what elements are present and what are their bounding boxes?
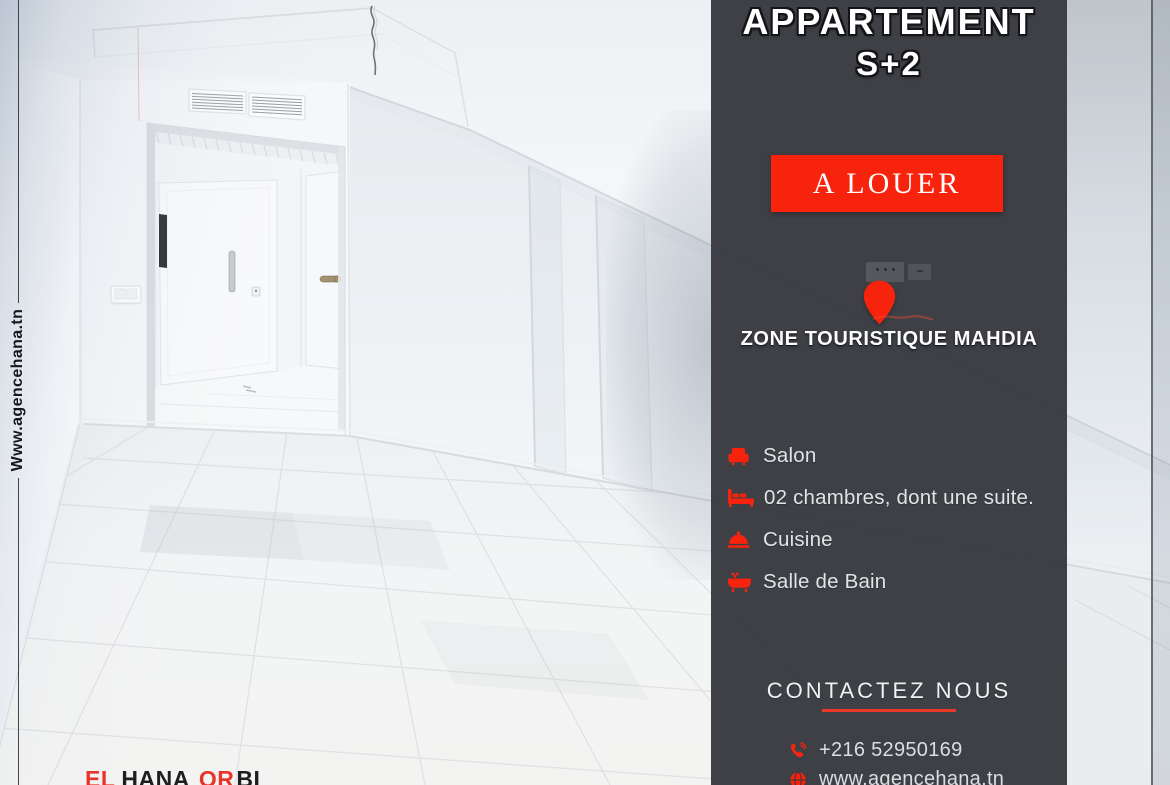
feature-label: 02 chambres, dont une suite. xyxy=(764,486,1034,510)
watermark-url: Www.agencehana.tn xyxy=(9,309,27,472)
agency-logo: ELHANAORBI xyxy=(85,767,260,785)
globe-icon xyxy=(789,771,807,785)
feature-label: Cuisine xyxy=(763,528,833,552)
website-row[interactable]: www.agencehana.tn xyxy=(789,768,1004,785)
hallway-door-left xyxy=(159,180,277,385)
logo-segment: EL xyxy=(85,766,115,785)
feature-label: Salon xyxy=(763,444,816,468)
website-url: www.agencehana.tn xyxy=(819,768,1004,785)
sofa-icon xyxy=(727,447,754,466)
feature-item-salle-de-bain: Salle de Bain xyxy=(727,570,1055,594)
feature-item-chambres: 02 chambres, dont une suite. xyxy=(727,486,1055,510)
phone-icon xyxy=(789,742,807,760)
phone-number: +216 52950169 xyxy=(819,739,963,762)
hallway xyxy=(147,123,345,436)
watermark-rule-top xyxy=(18,0,19,303)
info-panel: APPARTEMENT S+2 A LOUER ZONE TOURISTIQUE… xyxy=(711,0,1067,785)
feature-label: Salle de Bain xyxy=(763,570,886,594)
ghost-switch-plate xyxy=(908,264,931,280)
watermark-rule-bottom xyxy=(18,478,19,785)
phone-row[interactable]: +216 52950169 xyxy=(789,739,963,762)
panel-title-line2: S+2 xyxy=(711,44,1067,84)
logo-segment: OR xyxy=(199,766,235,785)
rental-flyer: Www.agencehana.tn ELHANAORBI APPARTEMENT… xyxy=(0,0,1170,785)
panel-title-line1: APPARTEMENT xyxy=(711,1,1067,43)
feature-item-salon: Salon xyxy=(727,444,1055,468)
door-handle-bar xyxy=(229,251,235,292)
frame-line xyxy=(1151,0,1153,785)
bed-icon xyxy=(727,488,755,508)
cloche-icon xyxy=(727,531,754,550)
ghost-switch-plate xyxy=(866,262,904,282)
feature-item-cuisine: Cuisine xyxy=(727,528,1055,552)
light-switch xyxy=(111,286,141,304)
contact-heading: CONTACTEZ NOUS xyxy=(711,678,1067,704)
location-label: ZONE TOURISTIQUE MAHDIA xyxy=(711,328,1067,351)
feature-list: Salon 02 chambres, dont une suite. xyxy=(727,444,1055,612)
contact-heading-underline xyxy=(822,709,956,712)
red-scribble-mark xyxy=(871,309,935,325)
logo-segment: HANA xyxy=(121,766,189,785)
bathtub-icon xyxy=(727,572,754,593)
a-louer-button[interactable]: A LOUER xyxy=(771,155,1003,212)
logo-segment: BI xyxy=(236,766,260,785)
